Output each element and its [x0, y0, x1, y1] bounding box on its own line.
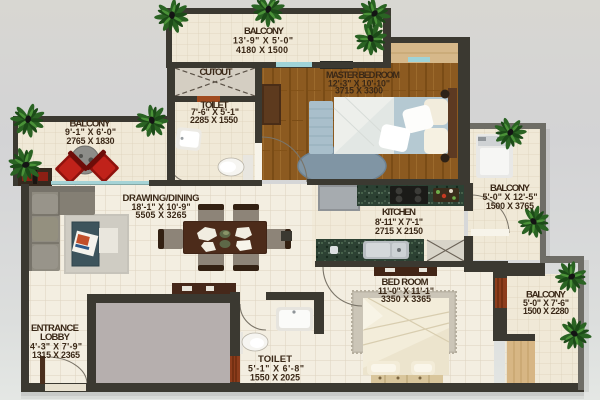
svg-text:3350 X 3365: 3350 X 3365 — [381, 294, 431, 304]
svg-text:2285 X 1550: 2285 X 1550 — [190, 115, 238, 125]
svg-text:2715 X 2150: 2715 X 2150 — [375, 226, 423, 236]
svg-text:5505 X 3265: 5505 X 3265 — [136, 210, 187, 220]
svg-text:3715 X 3300: 3715 X 3300 — [335, 86, 383, 96]
svg-text:13'-9" X 5'-0": 13'-9" X 5'-0" — [233, 36, 293, 46]
svg-text:1315 X 2365: 1315 X 2365 — [32, 350, 80, 360]
svg-text:4180 X 1500: 4180 X 1500 — [236, 45, 288, 55]
svg-text:1500 X 2280: 1500 X 2280 — [523, 306, 569, 316]
svg-text:1500 X 3765: 1500 X 3765 — [486, 201, 534, 211]
svg-text:2765 X 1830: 2765 X 1830 — [67, 136, 115, 146]
svg-text:1550 X 2025: 1550 X 2025 — [250, 373, 300, 383]
svg-text:CUTOUT: CUTOUT — [200, 67, 233, 78]
